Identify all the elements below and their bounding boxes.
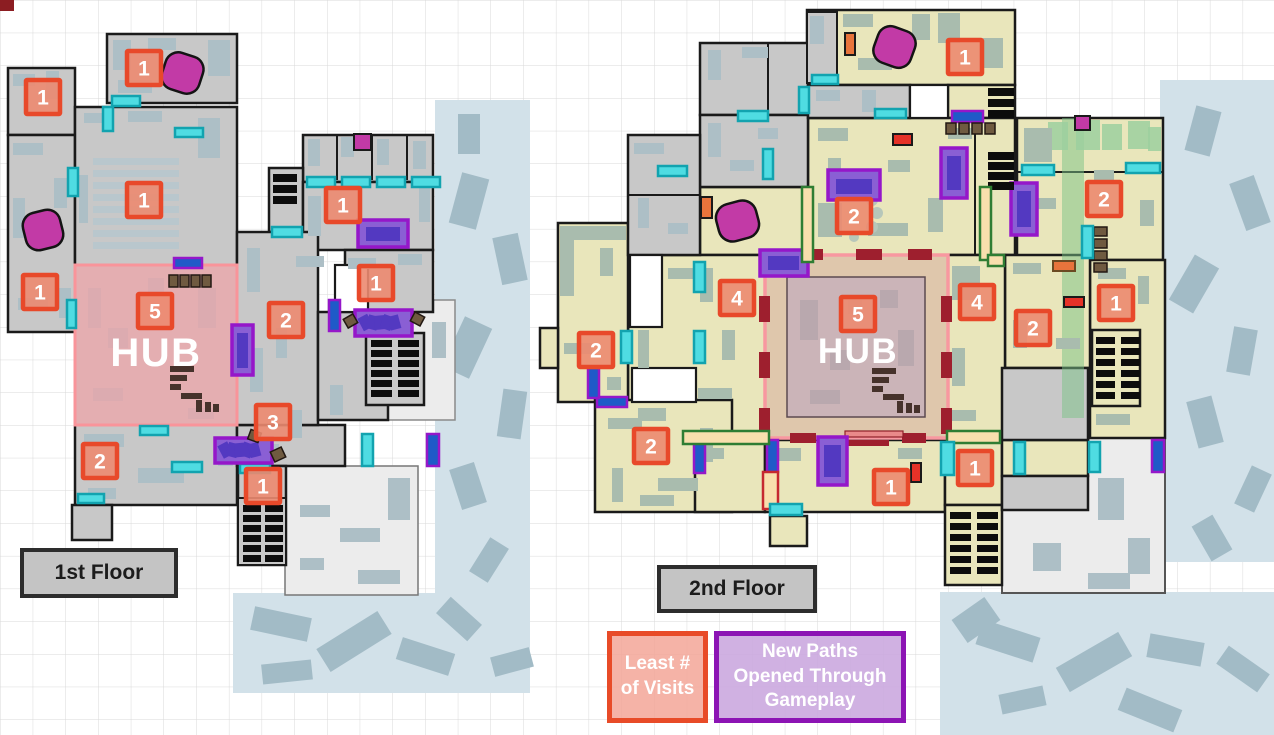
door-marker [875,109,906,118]
door-marker [78,494,104,503]
hub-border-dash [759,296,770,322]
furniture [292,410,302,438]
furniture [708,123,721,157]
floor2-label: 2nd Floor [657,565,817,613]
door-marker [103,107,113,131]
furniture [730,160,754,171]
furniture-green [1128,121,1150,149]
furniture [983,38,1003,68]
visit-count-number: 2 [1027,318,1039,341]
furniture [128,111,162,122]
stairs [371,390,392,397]
stairs [950,512,971,519]
visit-count-number: 1 [959,47,971,70]
crate-row [1094,227,1107,236]
stairs [1096,392,1115,399]
stair-glyph [872,377,889,383]
stairs [1096,381,1115,388]
furniture [1088,573,1130,589]
stairs [1096,348,1115,355]
room [540,328,558,368]
furniture [208,40,230,76]
stair-glyph [872,386,883,392]
visit-count-number: 2 [645,436,657,459]
gate-marker [683,431,769,444]
furniture [952,348,965,386]
door-marker [67,300,76,328]
stairs [273,185,297,193]
furniture [413,141,426,169]
visit-count-number: 2 [94,451,106,474]
new-path-inner [768,256,799,270]
stairs [243,545,261,552]
visit-count-number: 2 [280,310,292,333]
stairs [93,230,179,237]
stairs [93,170,179,177]
new-path-inner [824,445,841,477]
stairs [398,350,419,357]
furniture [928,198,943,232]
stairs [977,523,998,530]
orange-door-marker [701,197,712,218]
crate-row [972,123,982,134]
stairs [1096,337,1115,344]
furniture [300,558,324,570]
stairs [398,360,419,367]
new-path-inner [947,156,961,190]
door-marker [1022,165,1054,175]
gate-marker [980,187,991,260]
stairs [1096,370,1115,377]
door-marker [342,177,370,187]
door-marker [1126,163,1160,173]
furniture [612,468,623,502]
stairs [1121,370,1140,377]
furniture [300,505,330,517]
visit-count-number: 1 [257,476,269,499]
hub-border-dash [941,352,952,378]
crate-row [1094,239,1107,248]
furniture [668,223,688,234]
blue-door-marker [952,111,983,122]
furniture [398,254,422,265]
door-marker [658,166,687,176]
blue-door-marker [694,441,705,473]
door-marker [140,426,168,435]
new-path-inner [1017,191,1031,227]
new-path-inner [237,333,248,368]
furniture [1024,128,1052,162]
door-marker [172,462,202,472]
furniture [340,528,380,542]
map-shape [880,290,898,308]
stairs [265,535,283,542]
stairs [243,535,261,542]
furniture [341,137,354,157]
furniture [810,16,824,44]
crate-row [202,275,211,287]
stairs [977,556,998,563]
visit-count-number: 5 [852,304,864,327]
crate-row [985,123,995,134]
gate-marker [988,255,1004,266]
stair-glyph [205,402,211,412]
door-marker [770,504,802,515]
visit-count-number: 1 [138,190,150,213]
door-marker [1014,442,1025,474]
stairs [371,350,392,357]
hub-border-dash [856,249,882,260]
blue-door-marker [588,368,599,398]
map-hole [632,368,696,402]
hub-border-dash [908,249,932,260]
door-marker [68,168,78,196]
door-marker [941,442,954,475]
furniture [54,178,67,208]
crate-row [191,275,200,287]
furniture [388,478,410,520]
blue-door-marker [329,300,340,331]
furniture [247,248,260,292]
furniture-green [1148,127,1161,151]
furniture [330,385,343,415]
stairs [1121,337,1140,344]
stairs [398,340,419,347]
furniture [600,248,613,276]
door-marker [1082,226,1093,258]
visit-count-number: 4 [971,292,983,315]
legend-new-paths: New Paths Opened Through Gameplay [714,631,906,723]
visit-count-number: 1 [37,87,49,110]
visit-count-number: 3 [267,412,279,435]
stairs [1121,348,1140,355]
visit-count-number: 4 [731,288,743,311]
map-shape [898,330,914,366]
visit-count-number: 1 [969,458,981,481]
door-marker [412,177,440,187]
stairs [273,196,297,204]
stairs [371,360,392,367]
stairs [265,515,283,522]
stairs [93,242,179,249]
stairs [265,505,283,512]
floor1-label: 1st Floor [20,548,178,598]
map-hole [910,85,948,118]
furniture [419,188,430,222]
crate-row [180,275,189,287]
door-marker [307,177,335,187]
furniture [308,139,320,166]
stairs [977,545,998,552]
stairs [950,534,971,541]
outdoor-object [458,114,480,154]
stairs [243,505,261,512]
furniture [634,143,664,154]
stairs [398,380,419,387]
furniture [1013,263,1041,274]
stairs [243,555,261,562]
crate-row [1094,251,1107,260]
crate-row [169,275,178,287]
furniture [308,196,321,236]
furniture [296,256,324,267]
stair-glyph [906,403,912,413]
door-marker [799,87,809,113]
visit-count-number: 1 [138,58,150,81]
hub-border-dash [845,440,889,446]
door-marker [694,262,705,292]
stairs [273,174,297,182]
furniture [1096,414,1130,425]
paint-splat [1075,116,1090,130]
hub-border-dash [759,352,770,378]
stairs [977,512,998,519]
stair-glyph [897,401,903,413]
stairs [988,162,1014,170]
stairs [988,88,1014,96]
hub-border-dash [941,296,952,322]
visit-count-number: 2 [590,340,602,363]
furniture [888,160,910,172]
blue-door-marker [427,434,439,466]
furniture [843,14,873,27]
door-marker [738,111,768,121]
visit-count-number: 2 [848,206,860,229]
furniture [638,330,649,368]
stairs [950,523,971,530]
stairs [1121,359,1140,366]
furniture [1098,478,1124,520]
furniture [377,139,389,165]
blue-door-marker [174,258,202,268]
furniture [948,410,976,421]
visit-count-number: 1 [1110,293,1122,316]
furniture [638,408,666,421]
crate-row [946,123,956,134]
blue-door-marker [597,397,627,407]
furniture [1056,338,1080,349]
stairs [988,99,1014,107]
door-marker [377,177,405,187]
floor1-hub-label: HUB [110,331,201,375]
new-path-inner [366,227,400,241]
door-marker [1089,442,1100,472]
new-path-inner [836,179,872,194]
furniture [13,143,43,155]
stairs [371,380,392,387]
room [1002,476,1088,510]
visit-count-number: 1 [885,477,897,500]
map-shape [845,431,903,437]
stairs [1121,381,1140,388]
level-visit-analysis: 11111152321 122454212211 HUB HUB 1st Flo… [0,0,1274,735]
stairs [371,370,392,377]
visit-count-number: 1 [337,195,349,218]
furniture [79,175,88,223]
stairs [265,545,283,552]
stairs [243,525,261,532]
room [72,505,112,540]
stairs [977,567,998,574]
stairs [93,158,179,165]
visit-count-number: 1 [370,273,382,296]
visit-count-number: 5 [149,301,161,324]
furniture [816,90,840,101]
furniture [668,268,696,279]
map-shape [810,390,840,404]
blue-door-marker [1152,440,1164,472]
furniture [1128,538,1150,574]
furniture [1140,200,1154,226]
stair-glyph [213,404,219,412]
red-door-marker [1064,297,1084,307]
furniture [638,198,649,228]
orange-door-marker [1053,261,1075,271]
visit-count-number: 1 [34,282,46,305]
hub-border-dash [902,433,926,443]
stairs [398,390,419,397]
furniture [818,128,848,141]
legend-least-visits: Least # of Visits [607,631,708,723]
red-door-marker [893,134,912,145]
stair-glyph [181,393,202,399]
furniture [148,38,176,50]
door-marker [362,434,373,466]
door-marker [694,331,705,363]
stairs [1096,359,1115,366]
orange-door-marker [845,33,855,55]
map-shape [0,0,14,11]
stair-glyph [196,400,202,412]
stairs [371,340,392,347]
door-marker [763,149,773,179]
furniture [898,448,922,459]
hub-border-dash [790,433,816,443]
legend-new-paths-text: New Paths Opened Through Gameplay [733,640,886,714]
floor2-label-text: 2nd Floor [689,577,785,601]
stairs [977,534,998,541]
furniture [560,226,574,296]
furniture [758,128,778,139]
stair-glyph [914,405,920,413]
furniture [1033,543,1061,571]
stairs [265,525,283,532]
furniture [742,47,768,58]
stairs [950,567,971,574]
stairs [265,555,283,562]
stairs [950,556,971,563]
visit-count-number: 2 [1098,189,1110,212]
door-marker [175,128,203,137]
furniture [722,330,735,360]
stairs [243,515,261,522]
door-marker [621,331,632,363]
room [770,516,807,546]
stairs [988,152,1014,160]
stair-glyph [883,394,904,400]
floor2-hub-label: HUB [818,332,898,371]
crate-row [959,123,969,134]
door-marker [272,227,302,237]
door-marker [112,96,140,106]
furniture [698,388,732,399]
door-marker [812,75,838,84]
stairs [398,370,419,377]
red-door-marker [911,463,921,482]
stairs [988,172,1014,180]
paint-splat [354,134,371,150]
stair-glyph [170,384,181,390]
furniture [708,50,721,80]
furniture [658,478,698,491]
furniture [432,322,446,358]
stairs [988,110,1014,118]
furniture [1138,276,1149,304]
furniture [640,495,674,506]
stair-glyph [170,375,187,381]
level-map-canvas: 11111152321 122454212211 HUB HUB [0,0,1274,735]
furniture [358,570,400,584]
map-shape [800,300,818,340]
stairs [950,545,971,552]
legend-least-visits-text: Least # of Visits [621,652,695,701]
stairs [1121,392,1140,399]
gate-marker [802,187,813,262]
map-hole [630,255,662,327]
furniture [607,377,621,390]
crate-row [1094,263,1107,272]
floor1-label-text: 1st Floor [55,561,144,585]
furniture-green [1102,124,1122,150]
